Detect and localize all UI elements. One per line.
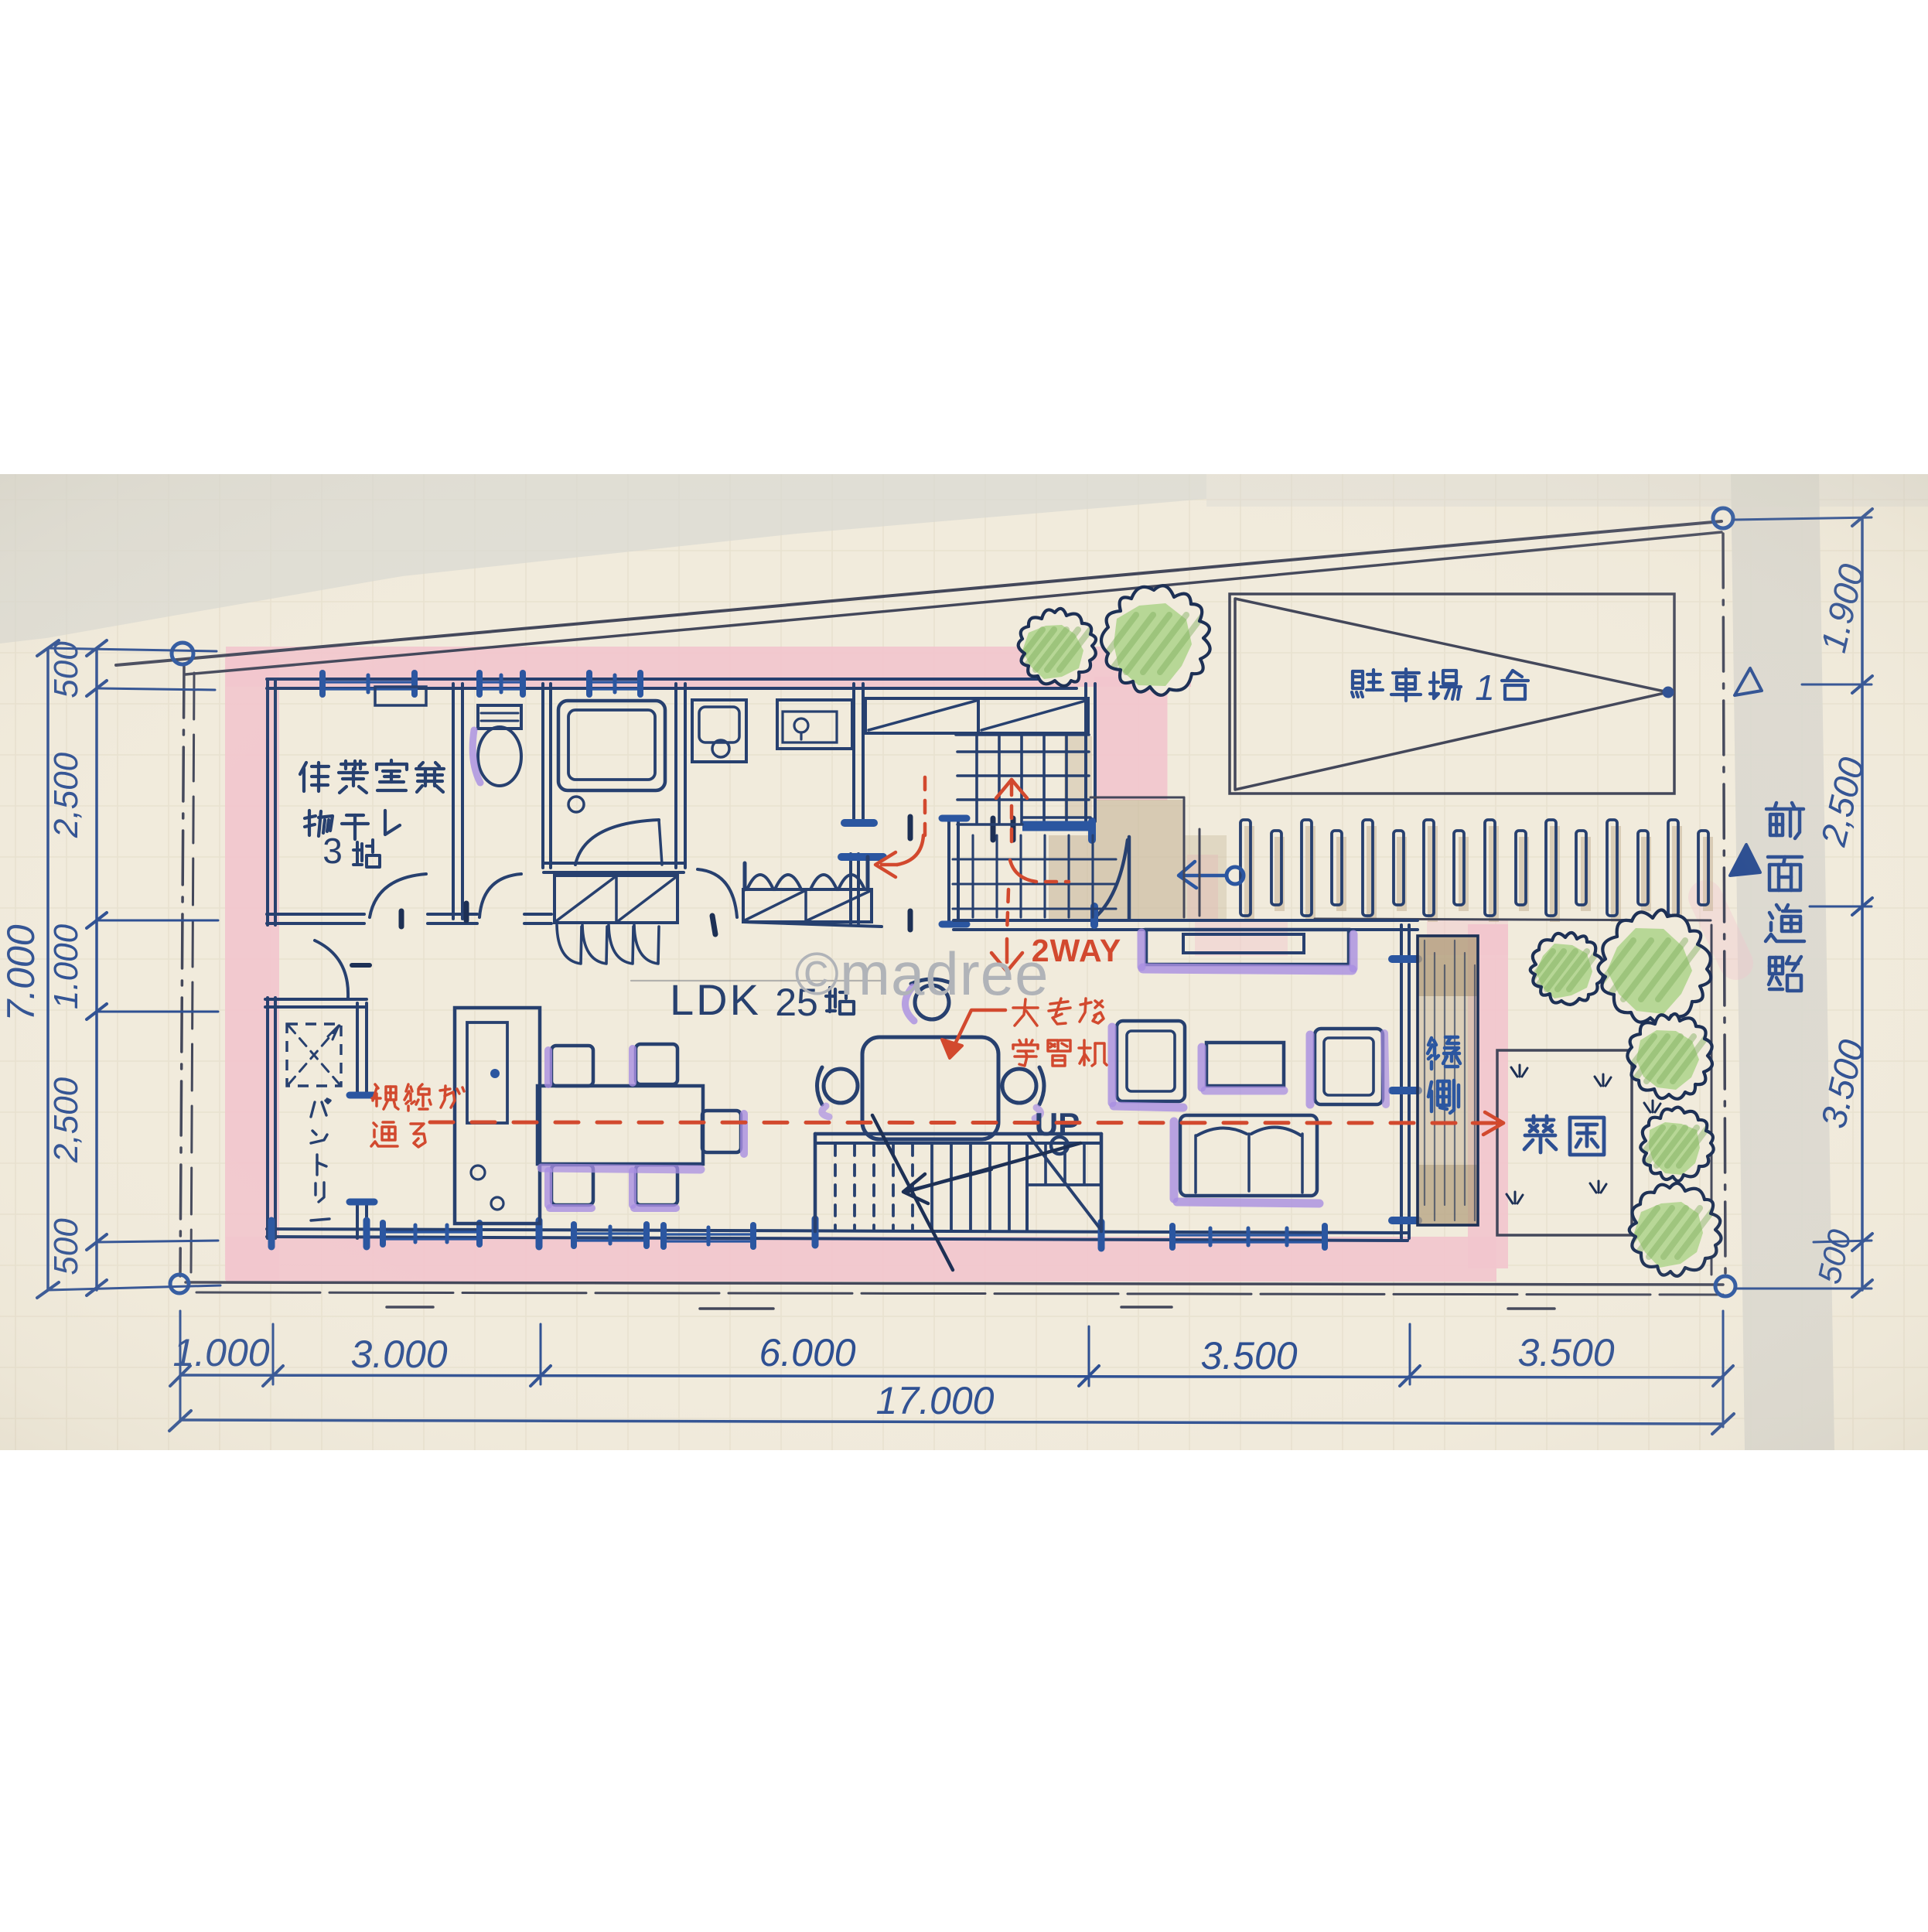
svg-text:©madree: ©madree <box>795 940 1049 1008</box>
